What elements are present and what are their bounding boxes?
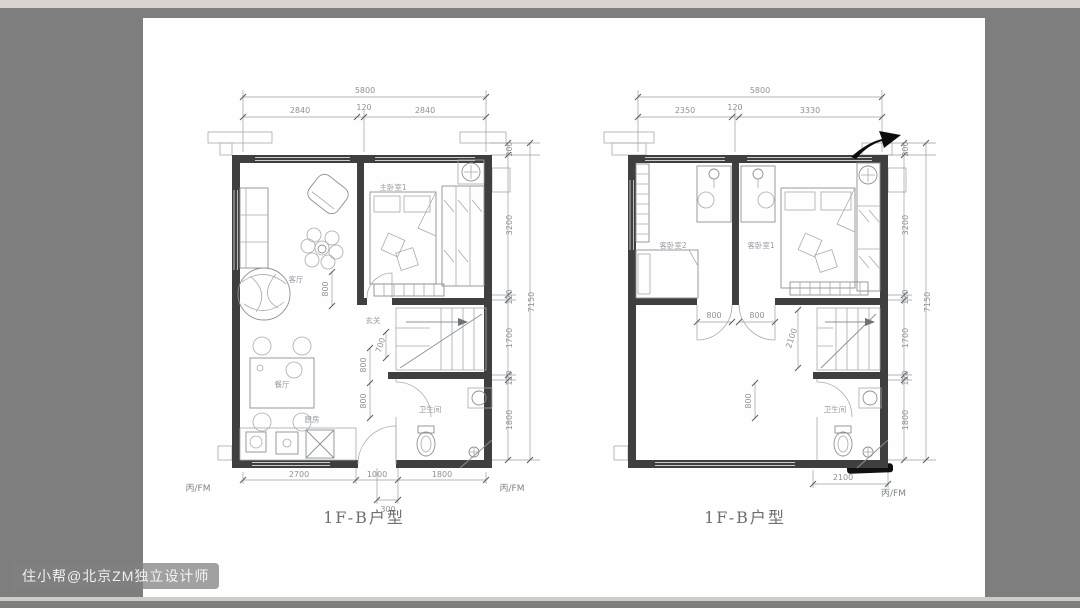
dim-right-offset: 200 — [901, 141, 910, 156]
dim-top-left: 2840 — [290, 106, 310, 115]
dim-door-1: 800 — [706, 311, 721, 320]
stairs-direction-arrow — [865, 318, 875, 326]
dim-right-offset: 200 — [505, 141, 514, 156]
dim-right-1: 3200 — [505, 215, 514, 235]
slide-viewer: 5800 2840 120 2840 200 3200 120 1700 120… — [0, 0, 1080, 608]
room-label-bedroom2: 客卧室2 — [659, 240, 686, 250]
top-dimension-chain: 5800 2840 120 2840 — [240, 86, 489, 152]
top-dimension-chain: 5800 2350 120 3330 — [635, 86, 885, 152]
dim-top-total: 5800 — [750, 86, 770, 95]
dim-top-right: 3330 — [800, 106, 820, 115]
bathroom-fixtures — [417, 388, 492, 468]
staircase — [817, 308, 880, 370]
bottom-dimension-chain: 2100 丙/FM — [810, 463, 906, 499]
dim-right-5: 1800 — [901, 410, 910, 430]
watermark: 住小帮@北京ZM独立设计师 — [12, 563, 219, 589]
round-rug — [238, 268, 290, 320]
left-floor-plan: 5800 2840 120 2840 200 3200 120 1700 120… — [160, 60, 560, 545]
bedroom1-furniture — [741, 163, 880, 295]
fm-label-right: 丙/FM — [881, 488, 906, 499]
bedroom-furniture — [370, 160, 484, 296]
dim-living-depth: 800 — [321, 281, 330, 296]
room-label-entry: 玄关 — [366, 315, 381, 325]
fm-label-right: 丙/FM — [500, 483, 525, 494]
room-label-bath: 卫生间 — [419, 404, 442, 414]
interior-dimensions: 800 800 2100 800 — [694, 307, 801, 421]
dim-right-4: 120 — [505, 370, 514, 385]
plan-title-left: 1F-B户型 — [323, 508, 405, 527]
dim-hall-1: 800 — [359, 357, 368, 372]
dim-bottom-3: 1800 — [432, 470, 452, 479]
staircase — [396, 308, 486, 370]
top-border-strip — [0, 0, 1080, 8]
dim-right-total: 7150 — [923, 292, 932, 312]
dim-bottom-1: 2100 — [833, 473, 853, 482]
dim-right-2: 120 — [505, 289, 514, 304]
plan-title-right: 1F-B户型 — [704, 508, 786, 527]
dim-right-3: 1700 — [505, 328, 514, 348]
dim-right-3: 1700 — [901, 328, 910, 348]
dim-right-4: 120 — [901, 370, 910, 385]
living-furniture — [238, 171, 351, 320]
dim-top-left: 2350 — [675, 106, 695, 115]
dim-bottom-2: 1000 — [367, 470, 387, 479]
right-floor-plan: 5800 2350 120 3330 200 3200 120 1700 120… — [585, 60, 985, 545]
bedroom2-furniture — [636, 164, 731, 298]
flower-table — [301, 228, 343, 269]
dim-hall-2: 800 — [359, 393, 368, 408]
fm-label-left: 丙/FM — [186, 483, 211, 494]
dim-right-1: 3200 — [901, 215, 910, 235]
dim-top-right: 2840 — [415, 106, 435, 115]
room-label-kitchen: 厨房 — [305, 414, 320, 424]
dim-top-mid: 120 — [727, 103, 742, 112]
room-label-bath: 卫生间 — [824, 404, 847, 414]
dim-right-2: 120 — [901, 289, 910, 304]
dim-top-mid: 120 — [356, 103, 371, 112]
dim-top-total: 5800 — [355, 86, 375, 95]
room-label-dining: 餐厅 — [275, 380, 290, 389]
bottom-border-strip — [0, 597, 1080, 601]
dim-hall-1: 800 — [744, 393, 753, 408]
kitchen-counter — [240, 428, 356, 460]
room-label-living: 客厅 — [289, 274, 304, 284]
bathroom-fixtures — [834, 388, 888, 468]
dim-stair-depth: 2100 — [784, 327, 799, 349]
room-label-bedroom: 主卧室1 — [379, 182, 406, 192]
dim-right-total: 7150 — [527, 292, 536, 312]
room-label-bedroom1: 客卧室1 — [747, 240, 774, 250]
dim-right-5: 1800 — [505, 410, 514, 430]
dim-entry-width: 700 — [374, 337, 387, 354]
dim-door-2: 800 — [749, 311, 764, 320]
dim-bottom-1: 2700 — [289, 470, 309, 479]
interior-dimensions: 800 700 800 800 — [321, 269, 389, 421]
right-dimension-chain: 200 3200 120 1700 120 1800 7150 — [886, 140, 936, 463]
right-dimension-chain: 200 3200 120 1700 120 1800 7150 — [490, 140, 540, 463]
